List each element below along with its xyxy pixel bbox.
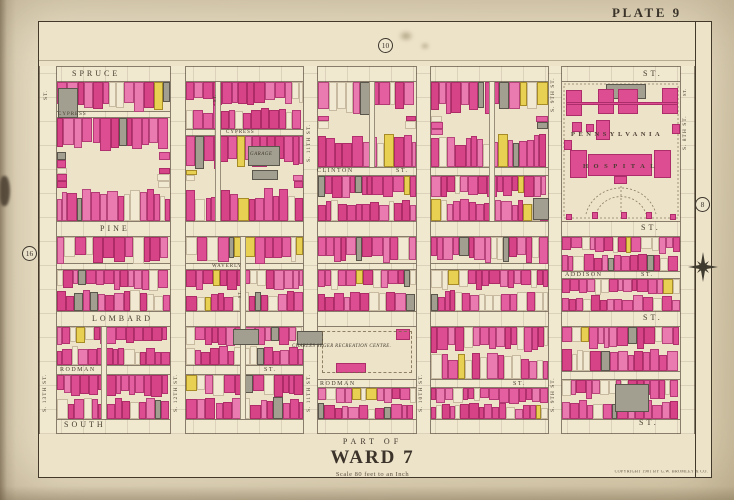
building-lot — [75, 237, 86, 255]
building-lot — [283, 403, 290, 419]
building-lot — [544, 327, 548, 346]
building-lot — [186, 375, 197, 391]
hospital-building — [614, 176, 627, 184]
hospital-name-line1: PENNSYLVANIA — [571, 132, 663, 139]
building-lot — [353, 82, 360, 114]
building-lot — [501, 201, 512, 221]
building-lot — [57, 237, 64, 264]
building-lot — [347, 205, 355, 221]
building-lot — [410, 205, 416, 221]
label-lombard: LOMBARD — [92, 315, 153, 323]
building-lot — [165, 199, 170, 221]
building-lot — [524, 327, 532, 352]
building-lot — [135, 375, 145, 393]
building-lot — [562, 402, 570, 419]
label-s-12th: S. 12TH ST. — [174, 374, 180, 412]
building-lot — [130, 402, 139, 419]
building-lot — [514, 270, 521, 284]
building-lot — [359, 405, 368, 419]
building-lot — [520, 82, 528, 106]
building-lot — [203, 270, 212, 284]
building-lot — [318, 136, 326, 167]
label-clinton-st: ST. — [396, 168, 409, 174]
building-lot — [273, 351, 280, 365]
hospital-building — [646, 212, 652, 219]
building-lot — [221, 190, 230, 221]
building-lot — [480, 388, 490, 398]
city-block — [562, 327, 680, 371]
building-lot — [318, 294, 325, 311]
label-spruce-st: ST. — [643, 70, 663, 78]
city-block — [57, 237, 170, 263]
building-lot — [342, 176, 350, 198]
building-lot — [583, 351, 590, 371]
building-lot — [623, 279, 632, 292]
building-lot — [592, 380, 600, 394]
building-lot — [390, 237, 398, 260]
building-lot — [662, 402, 670, 419]
building-lot — [186, 136, 195, 166]
building-lot — [637, 279, 647, 292]
building-lot — [381, 270, 388, 288]
building-lot — [149, 270, 158, 291]
building-lot — [151, 375, 162, 397]
building-lot — [292, 82, 299, 99]
building-lot — [63, 270, 72, 288]
adjacent-plate-ref-16: 16 — [22, 246, 37, 261]
city-block — [57, 118, 170, 221]
building-lot — [186, 399, 197, 419]
building-lot — [264, 375, 274, 395]
building-lot — [662, 296, 672, 311]
label-rodman-w-st: ST. — [264, 367, 277, 373]
building-lot — [224, 375, 235, 393]
building-lot — [107, 191, 118, 221]
building-lot — [500, 270, 508, 287]
building-lot — [161, 401, 169, 419]
building-lot — [157, 174, 170, 181]
building-lot — [614, 255, 621, 271]
paper-smudge — [398, 30, 414, 42]
building-lot — [386, 292, 395, 311]
building-lot — [250, 270, 257, 284]
building-lot — [337, 82, 346, 109]
label-alley-st-2: ST. — [238, 290, 243, 298]
building-lot — [643, 352, 650, 371]
building-lot — [193, 110, 203, 129]
street-south-st — [39, 419, 695, 434]
building-lot — [224, 297, 233, 311]
building-lot — [196, 270, 203, 290]
building-lot — [133, 237, 144, 264]
atlas-page: CHARLES SEGER RECREATION CENTRE.PENNSYLV… — [0, 0, 734, 500]
building-lot — [356, 204, 363, 221]
building-lot — [372, 237, 382, 256]
building-lot — [362, 237, 372, 257]
building-lot — [460, 199, 469, 221]
building-lot — [579, 400, 587, 419]
building-lot — [652, 405, 662, 419]
building-lot — [279, 327, 289, 345]
building-lot — [250, 346, 257, 365]
building-lot — [134, 82, 145, 112]
building-lot — [469, 82, 478, 110]
hospital-building — [566, 214, 572, 220]
building-lot — [197, 297, 205, 311]
building-lot — [576, 380, 585, 393]
title-ward: WARD 7 — [300, 447, 445, 469]
building-lot — [159, 152, 170, 160]
building-lot — [197, 399, 205, 419]
building-lot — [650, 349, 659, 371]
building-lot — [503, 176, 512, 196]
building-lot — [158, 118, 167, 149]
building-lot — [125, 237, 133, 257]
page-edge-shadow-left — [0, 0, 16, 500]
building-lot — [285, 82, 292, 104]
city-block — [562, 237, 680, 271]
building-lot — [543, 361, 548, 379]
building-lot — [274, 375, 284, 397]
building-lot — [103, 237, 114, 258]
building-lot — [448, 360, 457, 379]
building-lot — [132, 118, 142, 149]
building-lot — [610, 352, 618, 371]
building-lot — [147, 294, 154, 311]
building-lot — [106, 375, 115, 396]
dimension-line — [39, 60, 695, 61]
building-lot — [238, 82, 247, 104]
hospital-building — [592, 212, 598, 219]
building-lot — [299, 136, 303, 164]
building-lot — [618, 237, 625, 252]
label-s-13th: S. 13TH ST. — [43, 374, 49, 412]
building-lot — [498, 134, 507, 167]
building-lot — [57, 375, 64, 390]
city-block — [318, 176, 416, 221]
hospital-building — [672, 124, 680, 134]
building-lot — [96, 270, 104, 285]
label-cypress-w: CYPRESS — [58, 112, 87, 117]
building-lot — [410, 388, 416, 403]
building-lot — [562, 349, 572, 371]
building-lot — [162, 375, 168, 394]
building-lot — [618, 351, 628, 371]
building-lot — [667, 351, 678, 371]
building-lot — [662, 327, 673, 344]
building-lot — [195, 136, 204, 169]
hospital-building — [662, 88, 678, 114]
label-rodman-c-st: ST. — [513, 381, 526, 387]
city-block — [57, 375, 170, 419]
building-lot — [338, 270, 345, 286]
building-lot — [100, 118, 110, 151]
page-edge-shadow-bottom — [0, 486, 734, 500]
building-lot — [100, 194, 108, 221]
building-lot — [438, 297, 446, 311]
building-lot — [409, 237, 416, 260]
plate-number-label: PLATE 9 — [612, 5, 682, 21]
building-lot — [64, 375, 71, 393]
building-lot — [672, 300, 680, 311]
building-lot — [232, 82, 239, 103]
building-lot — [107, 404, 116, 419]
building-lot — [134, 327, 143, 341]
building-lot — [140, 192, 147, 221]
building-lot — [600, 380, 609, 395]
title-part-of: PART OF — [300, 437, 445, 446]
building-lot — [158, 181, 170, 188]
building-lot — [577, 350, 584, 371]
binding-mark — [0, 176, 10, 206]
building-lot — [493, 295, 501, 311]
building-lot — [91, 192, 100, 221]
building-lot — [504, 356, 512, 379]
building-lot — [289, 327, 296, 341]
building-lot — [238, 198, 248, 221]
building-lot — [614, 299, 623, 311]
label-st-8th-n: ST. — [683, 88, 688, 96]
building-lot — [591, 295, 599, 311]
building-lot — [254, 82, 264, 103]
building-lot — [582, 237, 590, 250]
building-lot — [218, 237, 229, 262]
building-lot — [480, 357, 487, 379]
building-lot — [163, 295, 170, 311]
hospital-building — [564, 140, 572, 150]
building-lot — [652, 237, 659, 251]
building-lot — [666, 237, 673, 248]
building-lot — [296, 237, 303, 255]
building-lot — [62, 349, 72, 365]
building-lot — [294, 375, 303, 395]
building-lot — [273, 397, 283, 419]
label-pine: PINE — [100, 225, 130, 233]
building-lot — [57, 181, 67, 188]
building-lot — [527, 140, 534, 167]
building-lot — [431, 199, 441, 221]
building-lot — [326, 138, 335, 167]
building-lot — [663, 279, 674, 294]
building-lot — [201, 352, 210, 365]
gray-building — [533, 198, 549, 220]
building-lot — [211, 294, 219, 311]
building-lot — [369, 292, 379, 311]
building-lot — [63, 118, 74, 145]
building-lot — [279, 109, 286, 129]
building-lot — [280, 350, 289, 365]
building-lot — [332, 176, 342, 198]
building-lot — [499, 82, 509, 109]
building-lot — [299, 82, 303, 103]
building-lot — [216, 403, 223, 419]
building-lot — [393, 176, 404, 192]
gray-building — [233, 329, 259, 345]
building-lot — [93, 118, 101, 143]
building-lot — [194, 82, 203, 98]
building-lot — [540, 388, 548, 403]
building-lot — [379, 82, 390, 105]
building-lot — [228, 351, 235, 365]
building-lot — [609, 327, 617, 347]
map-title-block: PART OF WARD 7 Scale 80 feet to an Inch — [300, 437, 445, 478]
building-lot — [186, 175, 195, 180]
building-lot — [124, 82, 134, 103]
building-lot — [468, 176, 478, 195]
building-lot — [521, 270, 530, 285]
city-block — [431, 388, 548, 419]
building-lot — [124, 349, 135, 365]
building-lot — [298, 349, 303, 365]
building-lot — [517, 292, 527, 311]
building-lot — [384, 407, 391, 419]
building-lot — [282, 237, 291, 257]
building-lot — [584, 254, 594, 271]
building-lot — [633, 295, 643, 311]
building-lot — [205, 375, 213, 394]
building-lot — [74, 118, 83, 148]
building-lot — [126, 327, 134, 343]
building-lot — [218, 327, 226, 345]
building-lot — [336, 388, 345, 403]
building-lot — [134, 270, 142, 289]
building-lot — [253, 375, 264, 391]
building-lot — [271, 327, 278, 341]
building-lot — [601, 279, 609, 293]
building-lot — [660, 258, 669, 271]
building-lot — [437, 327, 447, 350]
building-lot — [366, 388, 377, 400]
building-lot — [86, 270, 96, 284]
building-lot — [348, 407, 359, 419]
building-lot — [86, 237, 93, 255]
building-lot — [603, 404, 612, 419]
building-lot — [617, 327, 627, 346]
building-lot — [130, 290, 141, 311]
building-lot — [203, 113, 213, 129]
building-lot — [144, 375, 151, 396]
building-lot — [161, 352, 170, 365]
building-lot — [383, 176, 393, 197]
building-lot — [84, 398, 92, 419]
building-lot — [448, 327, 455, 345]
building-lot — [186, 348, 195, 365]
building-lot — [251, 110, 261, 129]
building-lot — [265, 82, 275, 100]
building-lot — [472, 353, 480, 379]
building-lot — [398, 270, 405, 284]
building-lot — [373, 270, 381, 288]
building-lot — [395, 293, 406, 311]
building-lot — [431, 270, 442, 288]
building-lot — [476, 204, 484, 221]
building-lot — [519, 388, 527, 402]
building-lot — [394, 137, 404, 167]
building-lot — [142, 270, 149, 290]
building-lot — [464, 327, 474, 348]
building-lot — [106, 327, 115, 344]
building-lot — [431, 176, 441, 197]
building-lot — [257, 270, 266, 286]
building-lot — [439, 137, 447, 167]
building-lot — [595, 237, 604, 252]
building-lot — [501, 294, 510, 311]
building-lot — [631, 237, 641, 252]
building-lot — [265, 237, 273, 258]
building-lot — [149, 118, 158, 143]
building-lot — [673, 237, 680, 252]
building-lot — [346, 82, 353, 113]
pennsylvania-hospital-block: PENNSYLVANIAHOSPITAL — [562, 82, 680, 221]
building-lot — [219, 346, 228, 365]
building-lot — [290, 399, 299, 419]
building-lot — [650, 380, 659, 399]
building-lot — [455, 145, 466, 167]
building-lot — [163, 82, 170, 102]
building-lot — [379, 205, 389, 221]
building-lot — [543, 292, 548, 311]
hospital-building — [670, 214, 676, 220]
building-lot — [489, 327, 496, 349]
building-lot — [116, 327, 126, 340]
building-lot — [85, 327, 94, 340]
title-scale-note: Scale 80 feet to an Inch — [300, 471, 445, 478]
building-lot — [74, 293, 83, 311]
building-lot — [384, 134, 394, 167]
building-lot — [394, 203, 402, 221]
building-lot — [326, 388, 336, 400]
building-lot — [142, 118, 149, 145]
building-lot — [539, 237, 548, 264]
building-lot — [601, 351, 610, 371]
building-lot — [57, 399, 68, 419]
building-lot — [64, 237, 75, 257]
adjacent-plate-ref-10: 10 — [378, 38, 393, 53]
hospital-name-line2: HOSPITAL — [583, 164, 660, 171]
city-block — [318, 82, 416, 167]
building-lot — [121, 375, 129, 391]
building-lot — [496, 327, 505, 347]
building-lot — [140, 293, 147, 311]
building-lot — [82, 189, 91, 221]
building-lot — [295, 198, 303, 221]
building-lot — [461, 82, 469, 105]
city-block — [562, 279, 680, 311]
building-lot — [186, 190, 195, 221]
building-lot — [535, 292, 543, 311]
building-lot — [392, 388, 400, 399]
building-lot — [604, 237, 613, 251]
building-lot — [346, 237, 356, 255]
building-lot — [342, 143, 352, 167]
building-lot — [499, 403, 506, 419]
building-lot — [402, 200, 410, 221]
adjacent-plate-ref-8: 8 — [695, 197, 710, 212]
building-lot — [524, 176, 534, 197]
building-lot — [469, 202, 476, 221]
building-lot — [489, 388, 499, 400]
building-lot — [318, 121, 329, 129]
building-lot — [569, 299, 576, 311]
building-lot — [523, 204, 532, 221]
building-lot — [105, 295, 115, 311]
building-lot — [531, 270, 538, 288]
building-lot — [338, 204, 348, 221]
label-south: SOUTH — [64, 421, 106, 429]
building-lot — [395, 82, 403, 109]
building-lot — [57, 174, 67, 181]
building-lot — [275, 82, 286, 98]
